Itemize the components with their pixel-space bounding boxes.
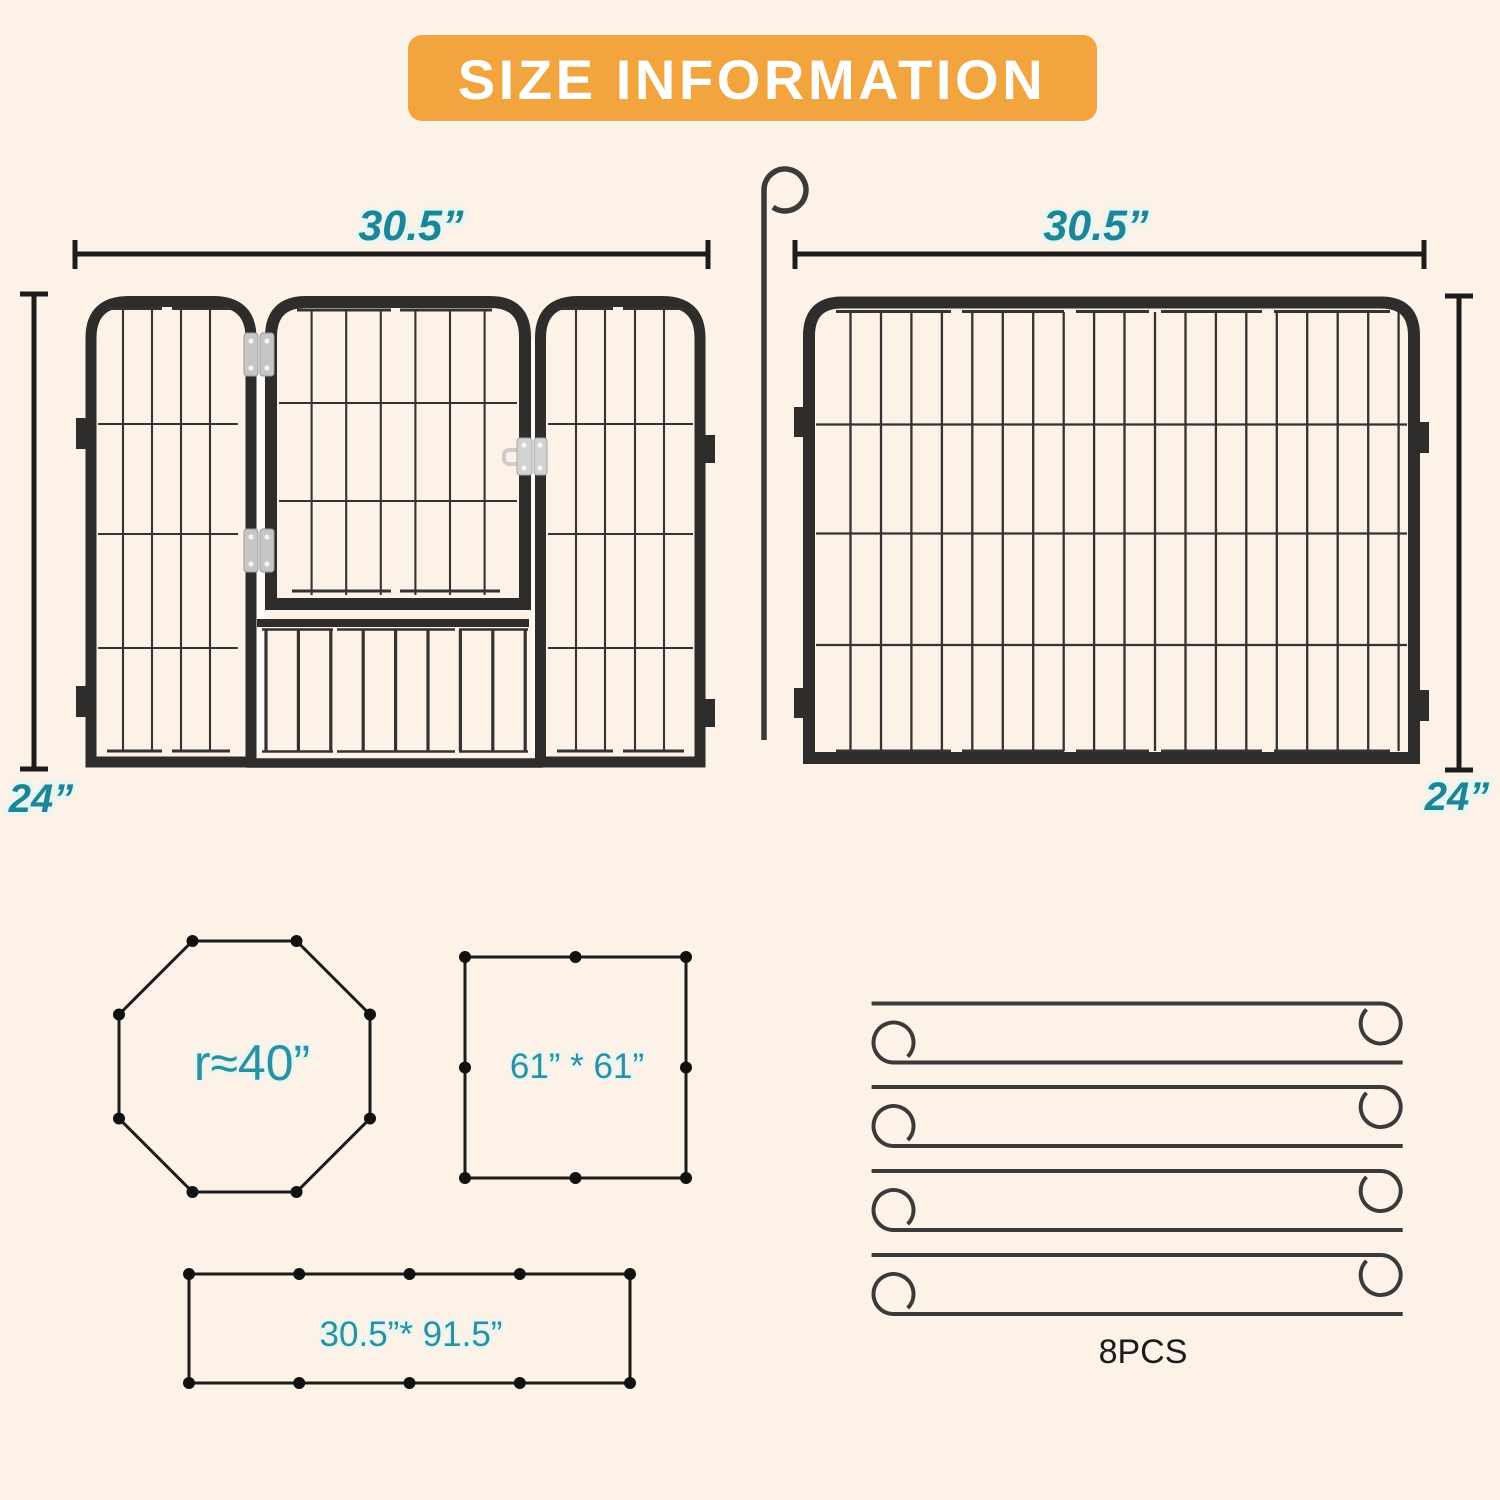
svg-text:SIZE INFORMATION: SIZE INFORMATION: [458, 48, 1047, 111]
svg-text:30.5”: 30.5”: [358, 202, 464, 250]
svg-text:61” * 61”: 61” * 61”: [510, 1047, 644, 1086]
svg-text:24”: 24”: [8, 777, 74, 821]
svg-text:30.5”* 91.5”: 30.5”* 91.5”: [320, 1315, 503, 1354]
svg-text:30.5”: 30.5”: [1043, 202, 1149, 250]
svg-text:r≈40”: r≈40”: [194, 1035, 310, 1091]
svg-text:8PCS: 8PCS: [1099, 1333, 1188, 1371]
svg-text:24”: 24”: [1424, 775, 1490, 819]
